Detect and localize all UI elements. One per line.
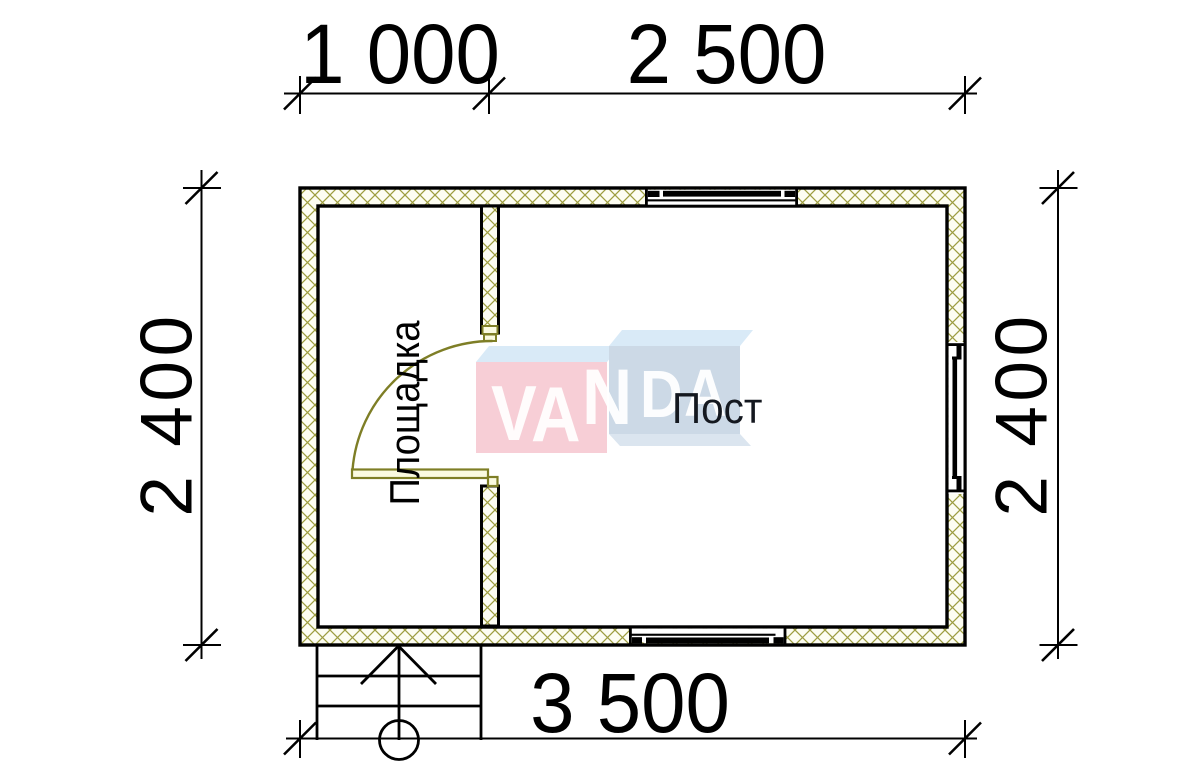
svg-text:2 400: 2 400: [982, 311, 1063, 516]
svg-text:2 400: 2 400: [127, 311, 208, 516]
svg-text:2 500: 2 500: [627, 8, 827, 101]
svg-text:V: V: [491, 369, 537, 457]
svg-text:Пост: Пост: [672, 383, 762, 432]
svg-text:1 000: 1 000: [300, 8, 500, 101]
svg-text:Площадка: Площадка: [383, 320, 429, 506]
svg-text:N: N: [582, 353, 632, 441]
svg-text:3 500: 3 500: [530, 657, 730, 750]
svg-text:A: A: [531, 370, 581, 458]
